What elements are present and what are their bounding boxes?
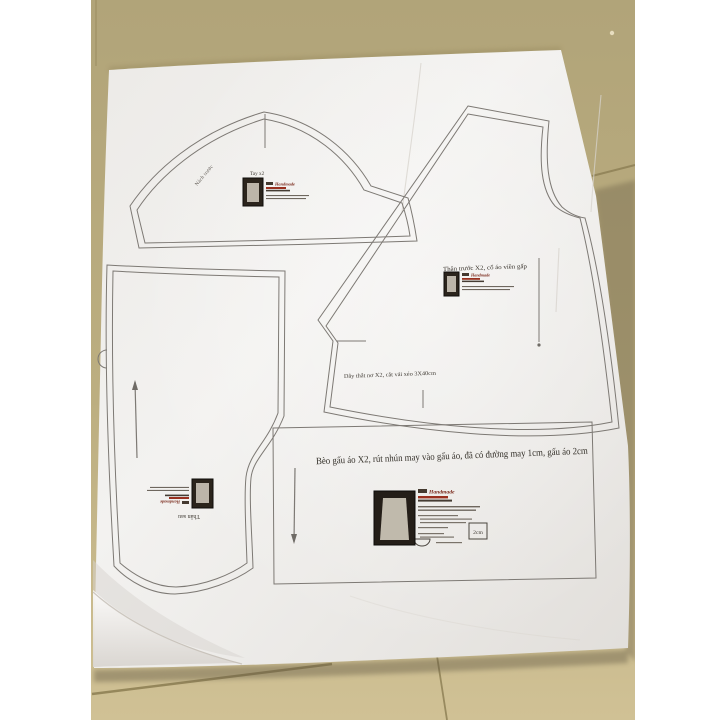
stamp-text-line [418,510,476,511]
stamp-red-bar [169,497,189,499]
logo-mark [266,182,273,185]
stamp-bullet-line [418,527,448,528]
stamp-dark-bar [165,495,189,497]
stamp-text-line [462,286,514,287]
stamp-text-line [462,289,510,290]
logo-mark [182,501,189,504]
floor-speck [610,31,614,35]
stamp-caption-line [436,542,462,543]
letterbox-left [0,0,91,720]
stamp-text-line [418,506,480,507]
stamp-dress [380,498,409,540]
brand-logo: Handmade [428,490,455,496]
stamp-bullet-line [418,515,458,516]
stamp-dress [247,183,259,202]
brand-logo: Handmade [274,182,295,187]
stamp-text-line [266,198,306,199]
stamp-dark-bar [266,190,290,192]
logo-mark [462,273,469,276]
stamp-red-bar [462,278,480,280]
paper-sheen [94,50,630,668]
stamp-dress [447,276,456,292]
logo-mark [418,489,427,493]
stamp-dress [196,483,209,503]
stamp-bullet-line [418,533,444,534]
stamp-dark-bar [418,500,452,502]
stamp-bullet-line [420,519,472,520]
brand-logo: Handmade [160,500,181,505]
stamp-dark-bar [462,281,484,283]
stamp-red-bar [266,187,286,189]
paper-sheet [93,50,630,668]
stamp-bullet-line [420,522,466,523]
stamp-red-bar [418,496,448,498]
stamp-bullet-line [420,537,454,538]
scale-label: 2cm [473,530,483,536]
letterbox-right [635,0,720,720]
stamp-text-line [150,487,189,488]
photo-canvas: Handmade Handmade Handmade Handmade [0,0,720,720]
stamp-text-line [266,195,309,196]
sleeve-label: Tay x2 [250,171,265,177]
brand-logo: Handmade [470,273,490,278]
back-label: Thân sau [178,513,200,519]
pattern-photo: Handmade Handmade Handmade Handmade [0,0,720,720]
stamp-text-line [147,490,189,491]
